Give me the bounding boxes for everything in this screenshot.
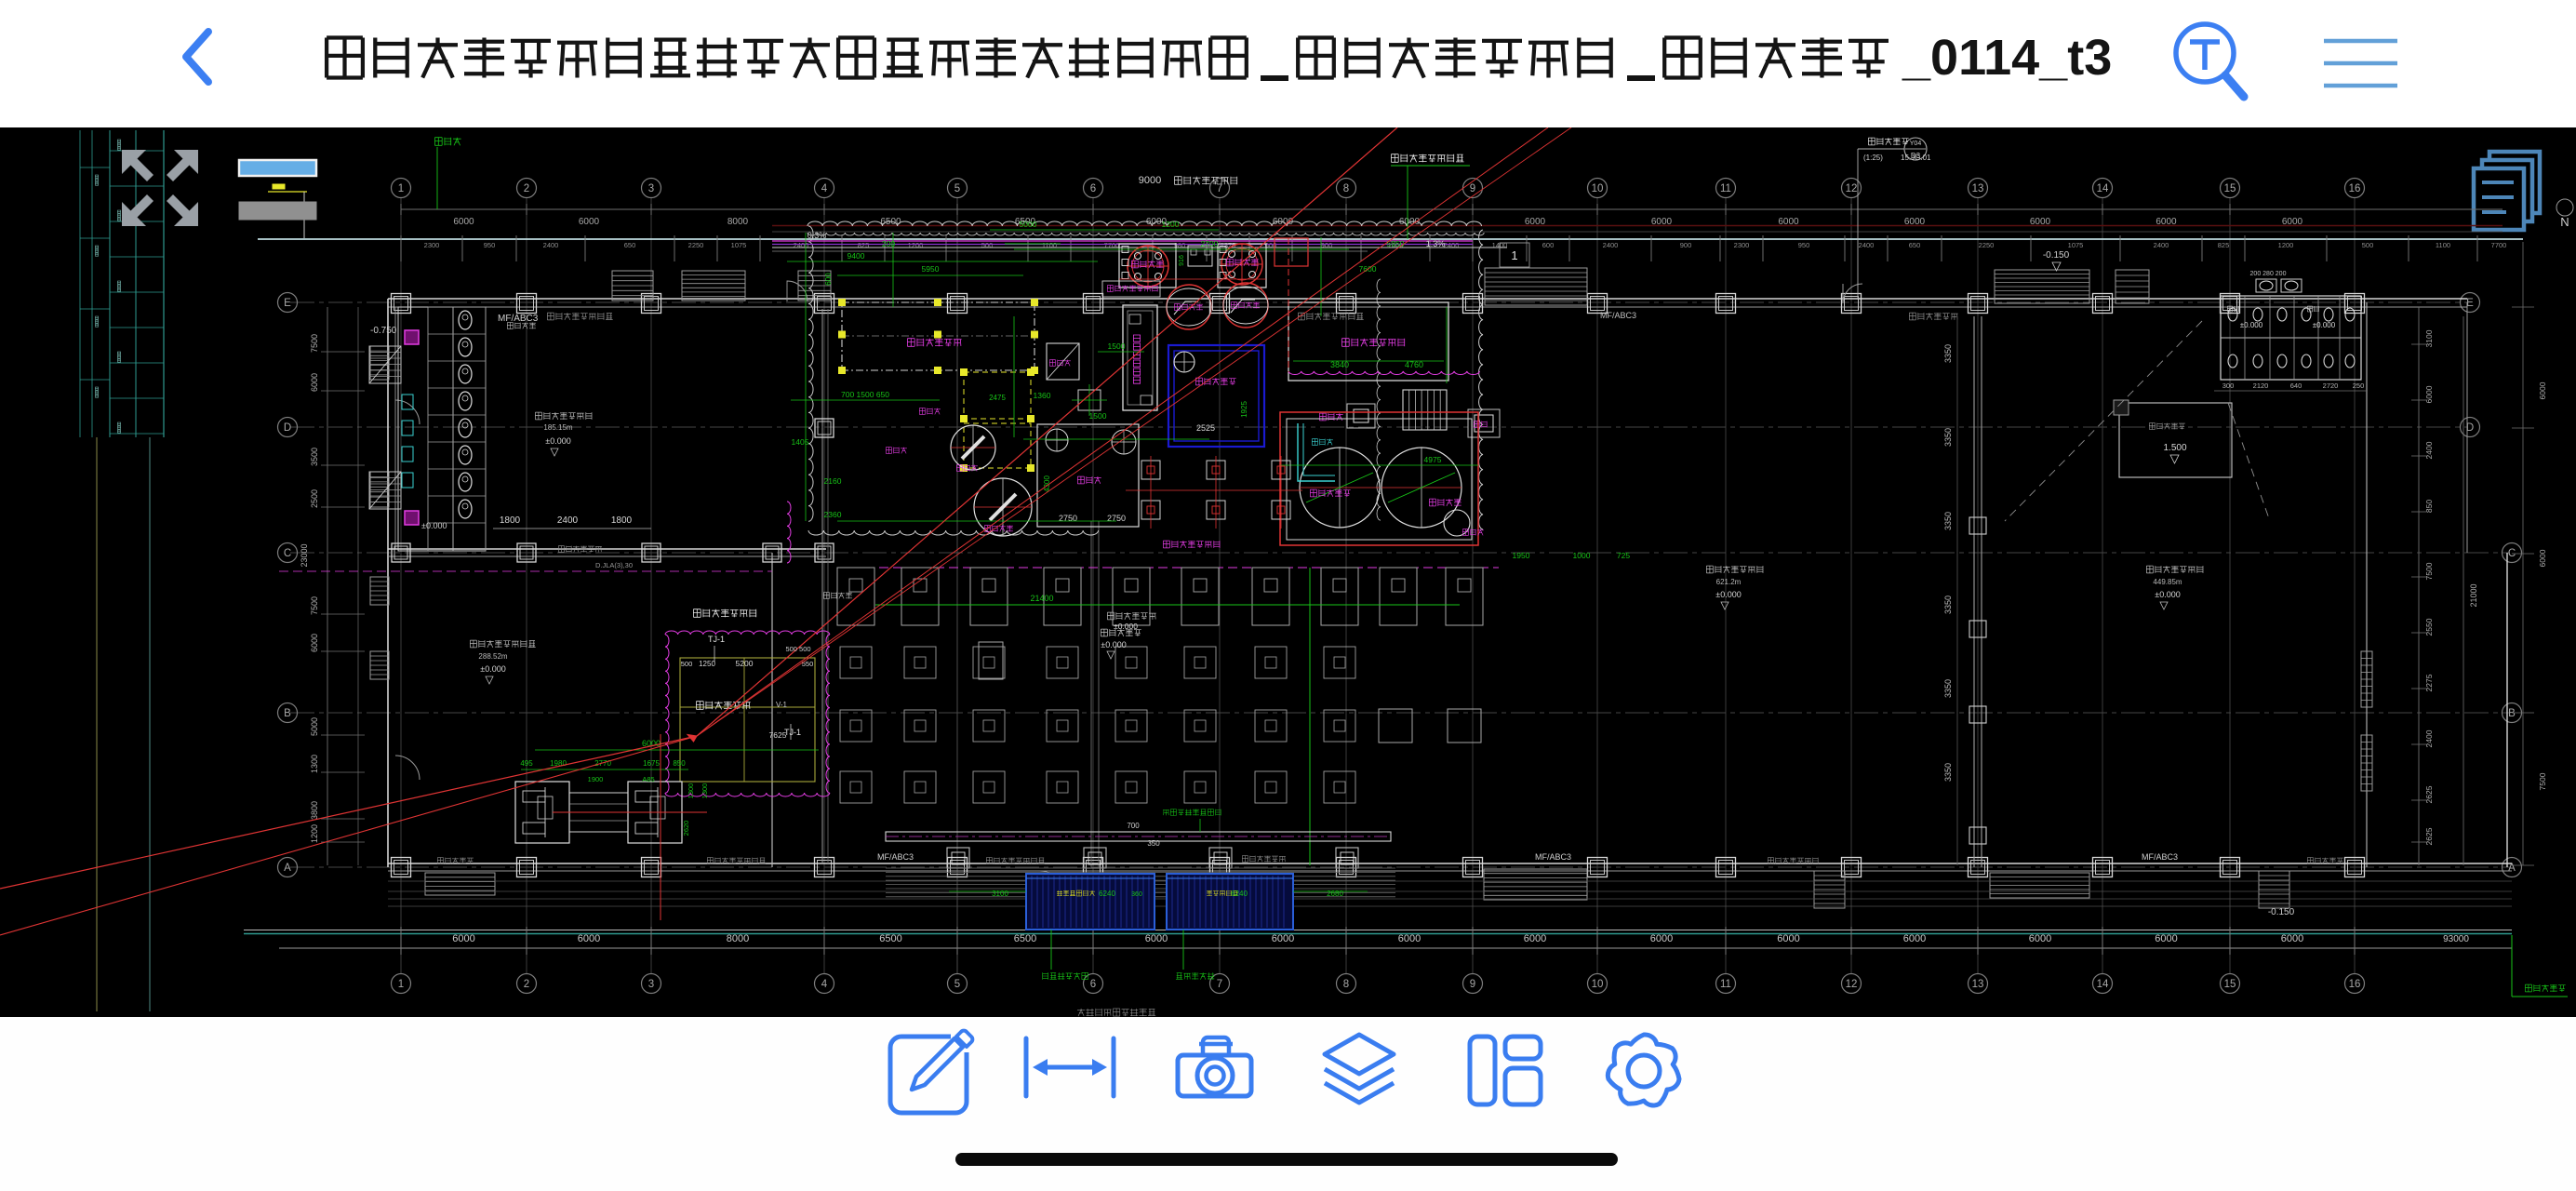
svg-text:V-1: V-1 — [776, 701, 788, 709]
svg-text:±0.000: ±0.000 — [545, 436, 570, 446]
svg-text:2400: 2400 — [557, 515, 579, 526]
svg-text:11: 11 — [1720, 183, 1731, 194]
svg-text:2: 2 — [524, 183, 529, 194]
svg-text:495: 495 — [520, 759, 533, 768]
svg-text:6000: 6000 — [310, 634, 319, 652]
svg-text:6000: 6000 — [1398, 933, 1421, 944]
svg-text:15: 15 — [2224, 183, 2236, 194]
svg-text:D.JLA(3),30: D.JLA(3),30 — [595, 561, 633, 569]
svg-text:9400: 9400 — [848, 251, 865, 261]
svg-text:6000: 6000 — [578, 933, 600, 944]
svg-text:B: B — [2508, 708, 2516, 719]
svg-text:2550: 2550 — [2424, 618, 2434, 636]
svg-text:2400: 2400 — [794, 241, 809, 249]
svg-text:1.3%: 1.3% — [1426, 239, 1446, 248]
svg-text:±0.000: ±0.000 — [1715, 590, 1741, 599]
svg-text:1950: 1950 — [1513, 551, 1530, 560]
svg-text:10: 10 — [1592, 183, 1604, 194]
svg-text:700 1500 650: 700 1500 650 — [841, 390, 889, 399]
svg-text:MF/ABC3: MF/ABC3 — [1535, 852, 1571, 862]
svg-text:360: 360 — [1131, 891, 1142, 898]
svg-text:6: 6 — [1090, 979, 1096, 990]
svg-text:1200: 1200 — [1162, 220, 1180, 229]
svg-text:2750: 2750 — [1059, 514, 1077, 523]
svg-text:B: B — [284, 708, 291, 719]
svg-text:-0.150: -0.150 — [2043, 250, 2070, 261]
svg-text:2700: 2700 — [1201, 239, 1219, 248]
svg-text:MF/ABC3: MF/ABC3 — [498, 314, 539, 324]
svg-text:1800: 1800 — [500, 515, 521, 526]
svg-text:21400: 21400 — [1030, 594, 1053, 603]
svg-text:6000: 6000 — [453, 217, 474, 227]
svg-text:9000: 9000 — [1139, 175, 1161, 186]
svg-text:4: 4 — [821, 979, 828, 990]
svg-text:200 280 200: 200 280 200 — [2250, 271, 2287, 277]
svg-text:16: 16 — [2349, 183, 2361, 194]
svg-text:2400: 2400 — [543, 241, 559, 249]
svg-text:6000: 6000 — [1903, 933, 1926, 944]
svg-text:2250: 2250 — [688, 241, 704, 249]
svg-text:9: 9 — [1470, 979, 1475, 990]
svg-text:MF/ABC3: MF/ABC3 — [2142, 852, 2178, 862]
svg-text:200: 200 — [882, 239, 895, 248]
svg-text:3800: 3800 — [310, 801, 319, 820]
svg-text:2160: 2160 — [824, 476, 842, 486]
svg-text:1: 1 — [398, 183, 404, 194]
svg-text:7500: 7500 — [2424, 562, 2434, 580]
svg-text:2: 2 — [524, 979, 529, 990]
svg-text:7: 7 — [1217, 979, 1222, 990]
svg-text:3500: 3500 — [310, 448, 319, 466]
svg-text:1800: 1800 — [611, 515, 633, 526]
svg-text:10: 10 — [1592, 979, 1604, 990]
svg-text:500: 500 — [981, 241, 994, 249]
svg-text:1200: 1200 — [310, 824, 319, 843]
svg-text:250: 250 — [2353, 381, 2365, 390]
svg-text:2300: 2300 — [424, 241, 440, 249]
svg-text:D: D — [284, 422, 291, 434]
svg-text:±0.000: ±0.000 — [2240, 321, 2263, 329]
svg-text:3350: 3350 — [1943, 512, 1953, 530]
svg-text:±0.000: ±0.000 — [480, 664, 505, 674]
svg-text:900: 900 — [1321, 241, 1333, 249]
svg-text:2400: 2400 — [1444, 241, 1460, 249]
svg-text:825: 825 — [2218, 241, 2230, 249]
svg-text:3100: 3100 — [2424, 329, 2434, 347]
svg-text:4975: 4975 — [1424, 455, 1442, 464]
svg-text:-0.150: -0.150 — [2268, 907, 2295, 917]
svg-text:15.JG.01: 15.JG.01 — [1901, 154, 1931, 162]
svg-text:6000: 6000 — [1145, 933, 1168, 944]
svg-text:N: N — [2560, 215, 2569, 229]
svg-text:0.3%: 0.3% — [808, 231, 827, 240]
svg-text:6000: 6000 — [1777, 933, 1799, 944]
svg-text:1200: 1200 — [2278, 241, 2294, 249]
svg-text:300: 300 — [2222, 381, 2235, 390]
svg-text:1: 1 — [398, 979, 404, 990]
svg-text:A85: A85 — [642, 775, 654, 783]
svg-text:MF/ABC3: MF/ABC3 — [1600, 311, 1636, 320]
svg-text:825: 825 — [858, 241, 870, 249]
svg-text:2475: 2475 — [989, 394, 1006, 402]
svg-text:Y04: Y04 — [1910, 141, 1922, 147]
svg-text:8: 8 — [1343, 183, 1349, 194]
svg-text:2400: 2400 — [1859, 241, 1875, 249]
svg-text:1300: 1300 — [310, 755, 319, 773]
svg-text:5: 5 — [954, 979, 960, 990]
svg-text:7700: 7700 — [1104, 241, 1120, 249]
svg-text:5200: 5200 — [736, 659, 754, 668]
svg-text:2400: 2400 — [1603, 241, 1619, 249]
svg-text:1925: 1925 — [1240, 401, 1248, 418]
svg-text:C: C — [284, 548, 291, 559]
svg-text:916: 916 — [1179, 255, 1185, 266]
svg-text:900: 900 — [1680, 241, 1692, 249]
svg-text:6240: 6240 — [1099, 890, 1115, 898]
svg-text:6000: 6000 — [1272, 933, 1294, 944]
svg-text:16: 16 — [2349, 979, 2361, 990]
svg-text:E: E — [284, 298, 291, 309]
svg-text:5000: 5000 — [1020, 220, 1037, 229]
svg-text:1100: 1100 — [2436, 241, 2450, 249]
svg-text:2400: 2400 — [2424, 441, 2434, 459]
svg-text:621.2m: 621.2m — [1716, 578, 1742, 586]
svg-text:MF/ABC3: MF/ABC3 — [877, 852, 914, 862]
svg-text:TJ-1: TJ-1 — [784, 728, 801, 737]
svg-text:A: A — [2508, 863, 2516, 874]
svg-text:6000: 6000 — [579, 217, 600, 227]
svg-text:6500: 6500 — [879, 933, 901, 944]
svg-text:1100: 1100 — [1042, 241, 1057, 249]
svg-text:6000: 6000 — [1524, 933, 1546, 944]
svg-text:4760: 4760 — [1405, 360, 1423, 369]
svg-text:1075: 1075 — [731, 241, 747, 249]
svg-text:1075: 1075 — [2068, 241, 2084, 249]
svg-text:8000: 8000 — [727, 217, 749, 227]
svg-text:3350: 3350 — [1943, 763, 1953, 782]
svg-text:500: 500 — [2362, 241, 2374, 249]
svg-text:650: 650 — [624, 241, 636, 249]
svg-text:±0.000: ±0.000 — [1101, 640, 1126, 649]
svg-text:3840: 3840 — [1330, 360, 1349, 369]
svg-text:5950: 5950 — [922, 264, 940, 274]
svg-text:1: 1 — [1511, 248, 1517, 262]
svg-text:2680: 2680 — [1327, 890, 1343, 898]
svg-text:13: 13 — [1972, 183, 1984, 194]
svg-text:2275: 2275 — [2424, 674, 2434, 691]
svg-text:6: 6 — [1090, 183, 1096, 194]
svg-text:6000: 6000 — [310, 373, 319, 392]
svg-text:2720: 2720 — [2323, 381, 2339, 390]
svg-text:2625: 2625 — [2424, 785, 2434, 803]
svg-text:12: 12 — [1846, 183, 1858, 194]
svg-text:350: 350 — [1147, 839, 1160, 848]
svg-text:1360: 1360 — [1034, 391, 1051, 400]
svg-text:640: 640 — [2290, 381, 2302, 390]
svg-text:2360: 2360 — [824, 510, 842, 519]
svg-text:6000: 6000 — [2538, 381, 2547, 399]
svg-text:-0.750: -0.750 — [370, 326, 397, 336]
svg-text:7500: 7500 — [2538, 772, 2547, 790]
svg-text:550: 550 — [802, 660, 814, 668]
svg-text:8: 8 — [1343, 979, 1349, 990]
svg-text:3: 3 — [648, 979, 654, 990]
svg-text:1675: 1675 — [643, 759, 660, 768]
svg-text:700: 700 — [1127, 822, 1140, 830]
svg-text:2400: 2400 — [2424, 729, 2434, 747]
svg-text:±0.000: ±0.000 — [2155, 590, 2180, 599]
svg-text:6500: 6500 — [1014, 933, 1036, 944]
svg-text:3350: 3350 — [1943, 679, 1953, 698]
svg-text:2250: 2250 — [1979, 241, 1995, 249]
svg-text:1900: 1900 — [588, 775, 604, 783]
svg-text:650: 650 — [1909, 241, 1921, 249]
svg-text:950: 950 — [1798, 241, 1810, 249]
svg-text:13: 13 — [1972, 979, 1984, 990]
svg-text:950: 950 — [484, 241, 496, 249]
svg-text:500: 500 — [681, 660, 693, 668]
svg-text:1250: 1250 — [699, 660, 715, 668]
svg-text:TJ-1: TJ-1 — [708, 635, 725, 644]
svg-text:1405: 1405 — [792, 437, 809, 447]
svg-text:7500: 7500 — [310, 334, 319, 353]
svg-text:600: 600 — [824, 273, 833, 286]
svg-text:±0.000: ±0.000 — [2313, 321, 2336, 329]
svg-text:7500: 7500 — [310, 596, 319, 615]
svg-text:3350: 3350 — [1943, 344, 1953, 363]
svg-text:21000: 21000 — [2469, 583, 2478, 607]
svg-text:93000: 93000 — [2443, 934, 2469, 944]
svg-text:2525: 2525 — [1196, 423, 1215, 433]
svg-text:449.85m: 449.85m — [2153, 578, 2182, 586]
svg-text:1200: 1200 — [908, 241, 924, 249]
svg-text:6000: 6000 — [2029, 933, 2051, 944]
svg-text:1300: 1300 — [701, 783, 709, 799]
svg-text:1500: 1500 — [1108, 341, 1126, 351]
svg-text:2300: 2300 — [1734, 241, 1750, 249]
svg-text:4: 4 — [821, 183, 828, 194]
svg-text:6000: 6000 — [1650, 933, 1673, 944]
svg-text:288.52m: 288.52m — [478, 652, 507, 661]
svg-text:2750: 2750 — [1107, 514, 1126, 523]
svg-text:7: 7 — [1217, 183, 1222, 194]
svg-text:2400: 2400 — [2154, 241, 2169, 249]
svg-text:2625: 2625 — [2424, 827, 2434, 845]
svg-text:23000: 23000 — [300, 543, 309, 567]
svg-text:1000: 1000 — [1573, 551, 1591, 560]
svg-text:1500: 1500 — [1089, 411, 1107, 421]
svg-text:9: 9 — [1470, 183, 1475, 194]
svg-text:2620: 2620 — [682, 821, 690, 836]
svg-text:725: 725 — [1617, 551, 1630, 560]
svg-text:7700: 7700 — [2491, 241, 2507, 249]
svg-text:1.500: 1.500 — [2163, 443, 2186, 453]
svg-text:6000: 6000 — [2155, 933, 2177, 944]
svg-text:_0114_t3: _0114_t3 — [1902, 30, 2112, 86]
svg-text:11: 11 — [1720, 979, 1731, 990]
svg-text:2120: 2120 — [2253, 381, 2269, 390]
svg-text:15: 15 — [2224, 979, 2236, 990]
svg-text:6000: 6000 — [2538, 549, 2547, 567]
svg-text:(1:25): (1:25) — [1863, 154, 1883, 162]
svg-text:14: 14 — [2097, 183, 2109, 194]
svg-text:±0.000: ±0.000 — [1114, 622, 1138, 631]
svg-text:3100: 3100 — [992, 890, 1008, 898]
svg-text:6000: 6000 — [452, 933, 474, 944]
svg-text:185.15m: 185.15m — [543, 423, 572, 432]
svg-text:3: 3 — [648, 183, 654, 194]
svg-text:3350: 3350 — [1943, 595, 1953, 614]
svg-text:5000: 5000 — [310, 717, 319, 736]
svg-text:6000: 6000 — [2281, 933, 2303, 944]
svg-text:A: A — [284, 863, 291, 874]
svg-text:850: 850 — [2424, 500, 2434, 513]
svg-text:850: 850 — [673, 759, 686, 768]
svg-text:±0.000: ±0.000 — [421, 521, 447, 530]
svg-text:500 500: 500 500 — [785, 645, 810, 653]
svg-text:5: 5 — [954, 183, 960, 194]
svg-text:6000: 6000 — [2424, 385, 2434, 403]
svg-text:6240: 6240 — [1231, 890, 1248, 898]
svg-text:1300: 1300 — [687, 783, 695, 799]
svg-text:600: 600 — [1542, 241, 1555, 249]
svg-text:12: 12 — [1846, 979, 1858, 990]
svg-text:14: 14 — [2097, 979, 2109, 990]
svg-text:2770: 2770 — [594, 759, 611, 768]
svg-text:8000: 8000 — [727, 933, 749, 944]
svg-text:3350: 3350 — [1943, 428, 1953, 447]
svg-text:2500: 2500 — [310, 489, 319, 508]
